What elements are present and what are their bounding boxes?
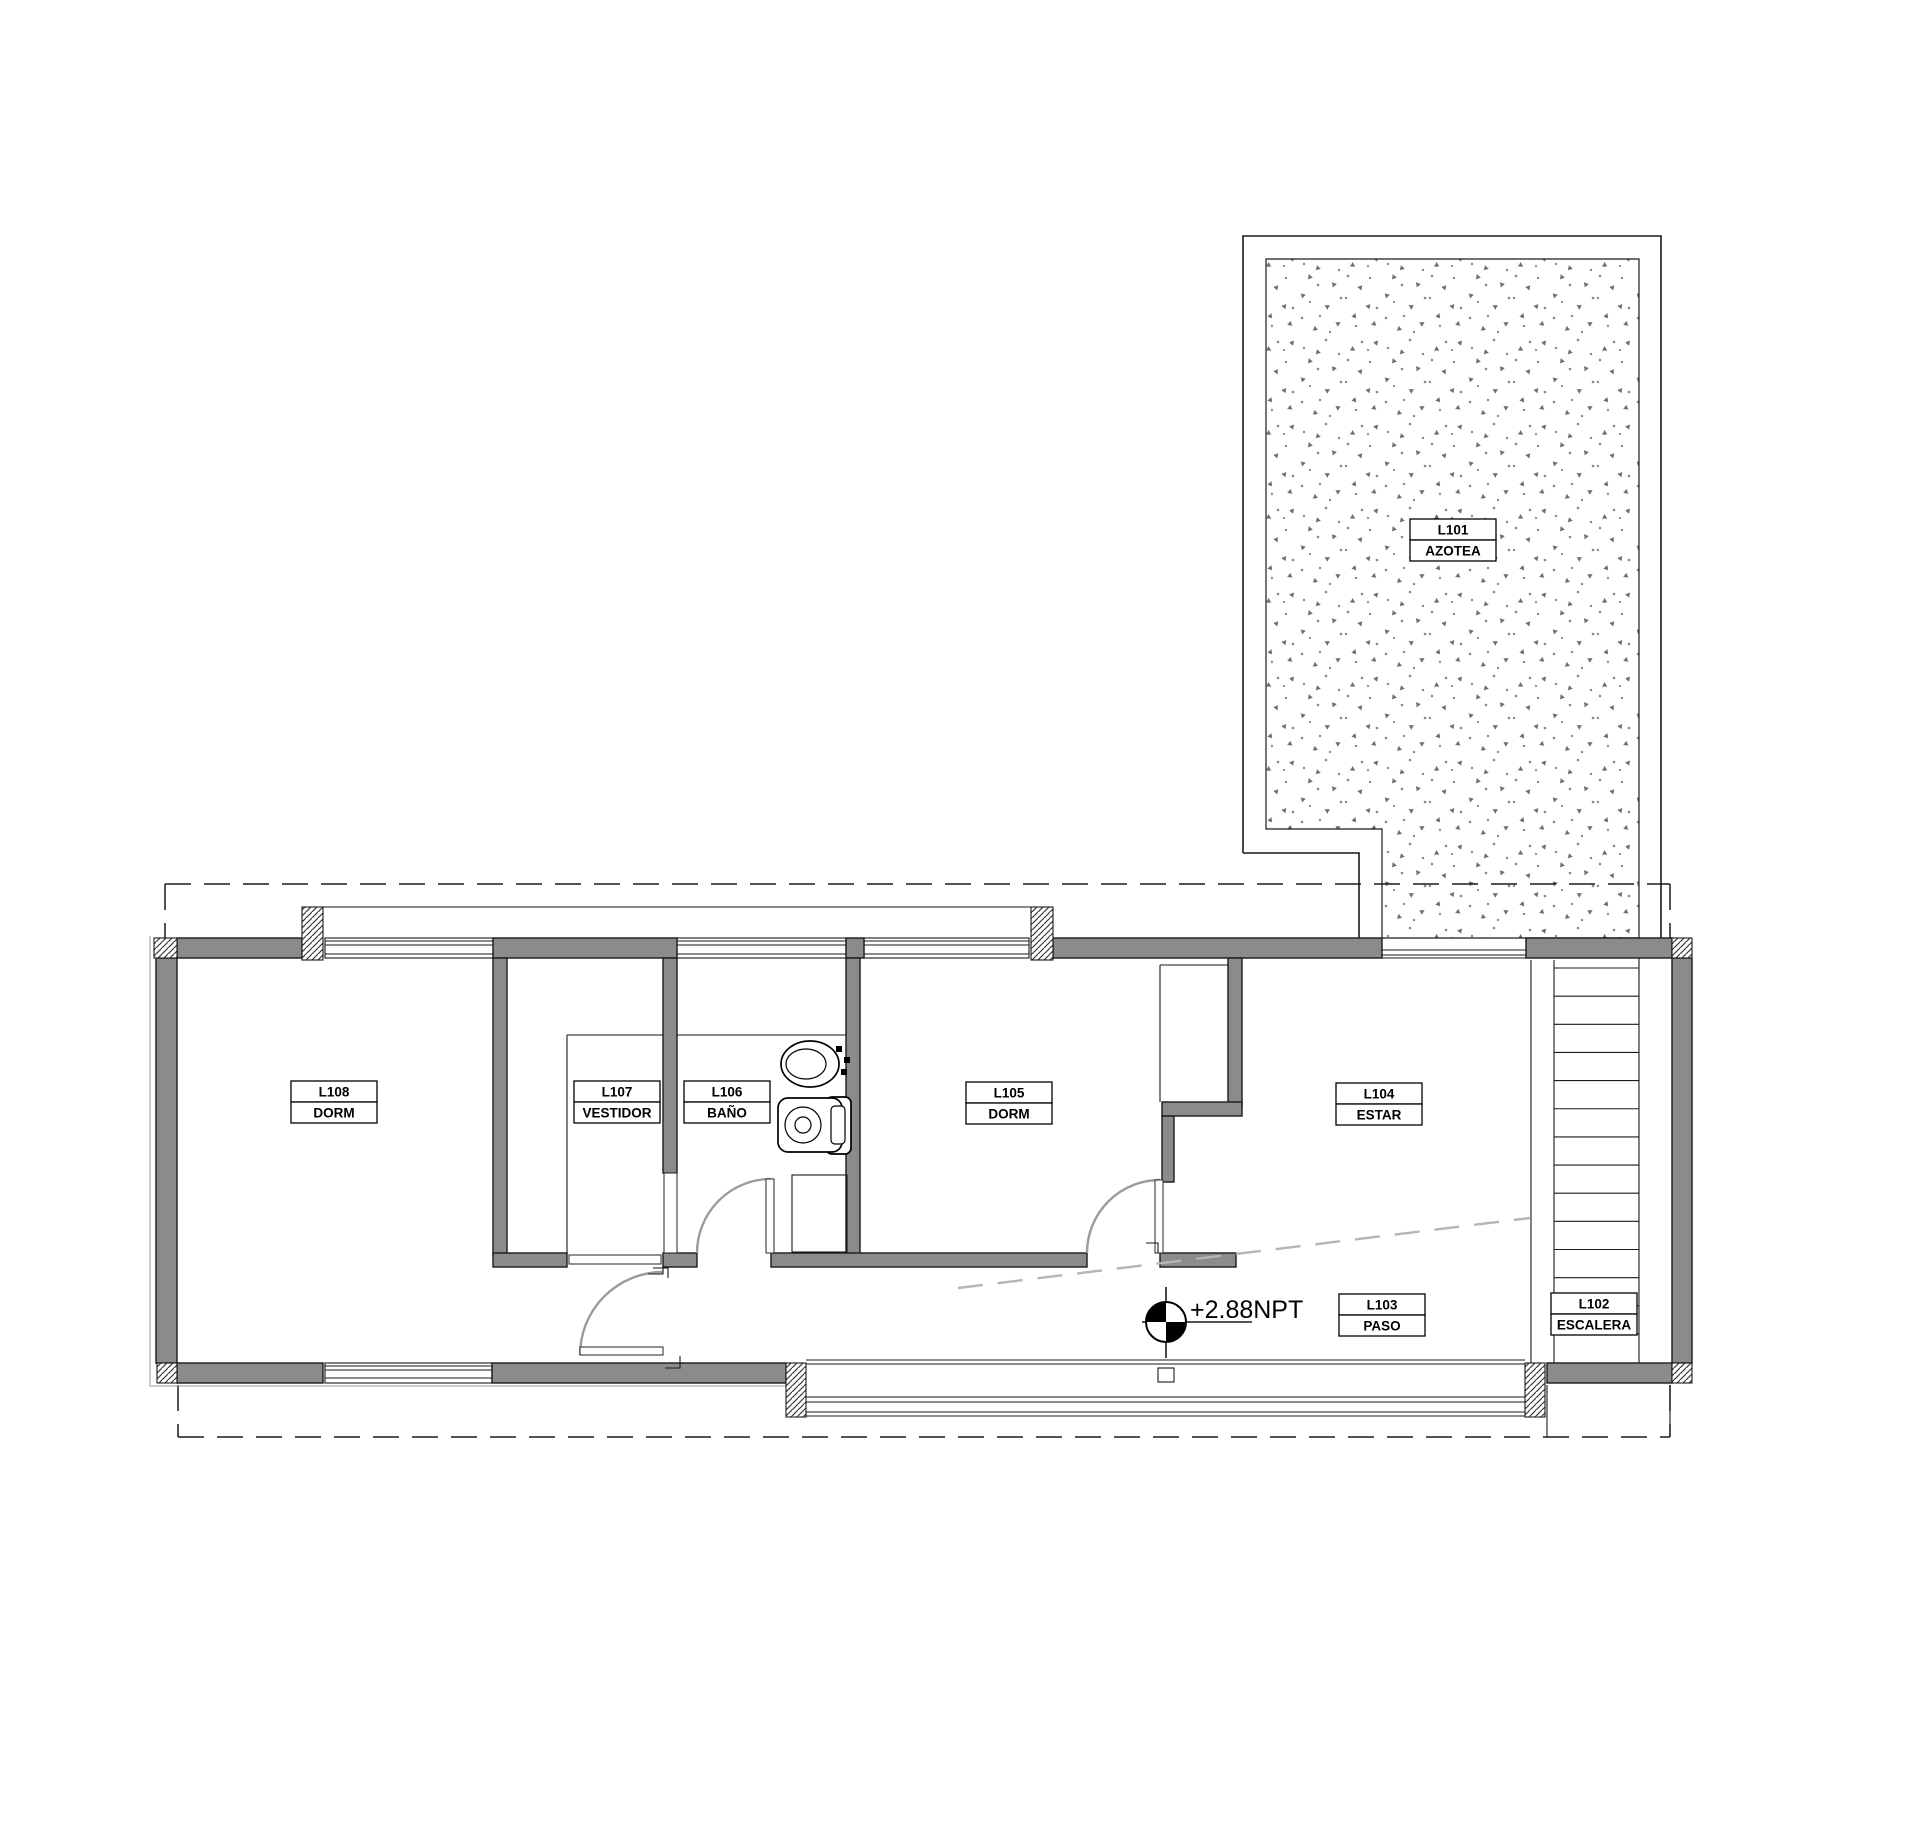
room-name: ESCALERA (1557, 1318, 1632, 1333)
column-sw (157, 1363, 177, 1383)
room-name: ESTAR (1357, 1108, 1402, 1123)
room-code: L103 (1367, 1298, 1398, 1313)
drawing-sheet: +2.88NPT L101 AZOTEA L108 DORM L107 VEST… (0, 0, 1907, 1837)
room-code: L104 (1364, 1087, 1395, 1102)
azotea-terrace (1243, 236, 1661, 938)
small-square-marker (1158, 1368, 1174, 1382)
wall-l107-foot (493, 1253, 567, 1267)
wall-closet-east (1228, 958, 1242, 1106)
level-marker-quadrant-nw (1146, 1302, 1166, 1322)
room-label-l103: L103 PASO (1339, 1294, 1425, 1336)
bathroom-fixtures (778, 1041, 851, 1154)
room-name: BAÑO (707, 1106, 747, 1121)
bath-counter (792, 1175, 847, 1252)
room-code: L107 (602, 1085, 633, 1100)
room-code: L108 (319, 1085, 350, 1100)
room-code: L105 (994, 1086, 1025, 1101)
azotea-door-opening (1382, 939, 1526, 958)
doors (569, 1173, 1163, 1368)
wall-corridor-2 (771, 1253, 1087, 1267)
columns (154, 907, 1692, 1417)
column-canopy-west (302, 907, 323, 960)
door-l107 (569, 1173, 677, 1274)
column-south-1 (786, 1363, 806, 1417)
floor-plan-svg: +2.88NPT L101 AZOTEA L108 DORM L107 VEST… (0, 0, 1907, 1837)
wall-east (1672, 958, 1692, 1363)
room-name: PASO (1363, 1319, 1400, 1334)
wall-north-1 (177, 938, 302, 958)
column-south-2 (1525, 1363, 1545, 1417)
wall-corridor-1 (663, 1253, 697, 1267)
room-code: L101 (1438, 523, 1469, 538)
dashed-boundary (165, 884, 1670, 1437)
room-label-l108: L108 DORM (291, 1081, 377, 1123)
level-marker: +2.88NPT (1142, 1287, 1303, 1358)
room-label-l105: L105 DORM (966, 1082, 1052, 1124)
room-label-l106: L106 BAÑO (684, 1081, 770, 1123)
room-code: L102 (1579, 1297, 1610, 1312)
window-bottom-left (325, 1363, 492, 1383)
column-se (1672, 1363, 1692, 1383)
door-l105 (1087, 1180, 1163, 1253)
toilet-icon (781, 1041, 850, 1087)
window-top-2 (677, 938, 846, 958)
room-name: DORM (313, 1106, 354, 1121)
room-label-l107: L107 VESTIDOR (574, 1081, 660, 1123)
window-top-1 (325, 938, 493, 958)
room-name: VESTIDOR (582, 1106, 651, 1121)
wall-south-2 (492, 1363, 786, 1383)
wall-l107-l106 (663, 958, 677, 1173)
wall-north-4 (1526, 938, 1672, 958)
azotea-stipple-area (1266, 259, 1639, 938)
walls (156, 938, 1692, 1383)
room-code: L106 (712, 1085, 743, 1100)
column-ne (1672, 938, 1692, 958)
wall-south-1 (177, 1363, 323, 1383)
wall-corridor-3 (1160, 1253, 1236, 1267)
wall-south-3 (1547, 1363, 1672, 1383)
door-l108 (580, 1268, 680, 1368)
stair-treads (1554, 968, 1639, 1334)
column-nw (154, 938, 177, 958)
wall-north-post (846, 938, 864, 958)
wall-l108-l107 (493, 958, 507, 1255)
wall-west (156, 958, 177, 1363)
room-label-l104: L104 ESTAR (1336, 1083, 1422, 1125)
sink-icon (778, 1097, 851, 1154)
door-l106 (697, 1179, 774, 1253)
azotea-outer-step (1243, 853, 1359, 938)
wall-north-3 (1053, 938, 1382, 958)
room-label-l102: L102 ESCALERA (1551, 1293, 1637, 1335)
room-name: DORM (988, 1107, 1029, 1122)
exterior-finish-line (150, 936, 786, 1386)
window-top-3 (864, 938, 1029, 958)
room-label-l101: L101 AZOTEA (1410, 519, 1496, 561)
wall-closet-step (1162, 1102, 1242, 1116)
level-marker-text: +2.88NPT (1190, 1296, 1303, 1324)
wall-north-2 (493, 938, 677, 958)
level-marker-quadrant-se (1166, 1322, 1186, 1342)
wall-l105-door-jamb (1162, 1116, 1174, 1182)
room-name: AZOTEA (1425, 544, 1481, 559)
column-canopy-east (1031, 907, 1053, 960)
